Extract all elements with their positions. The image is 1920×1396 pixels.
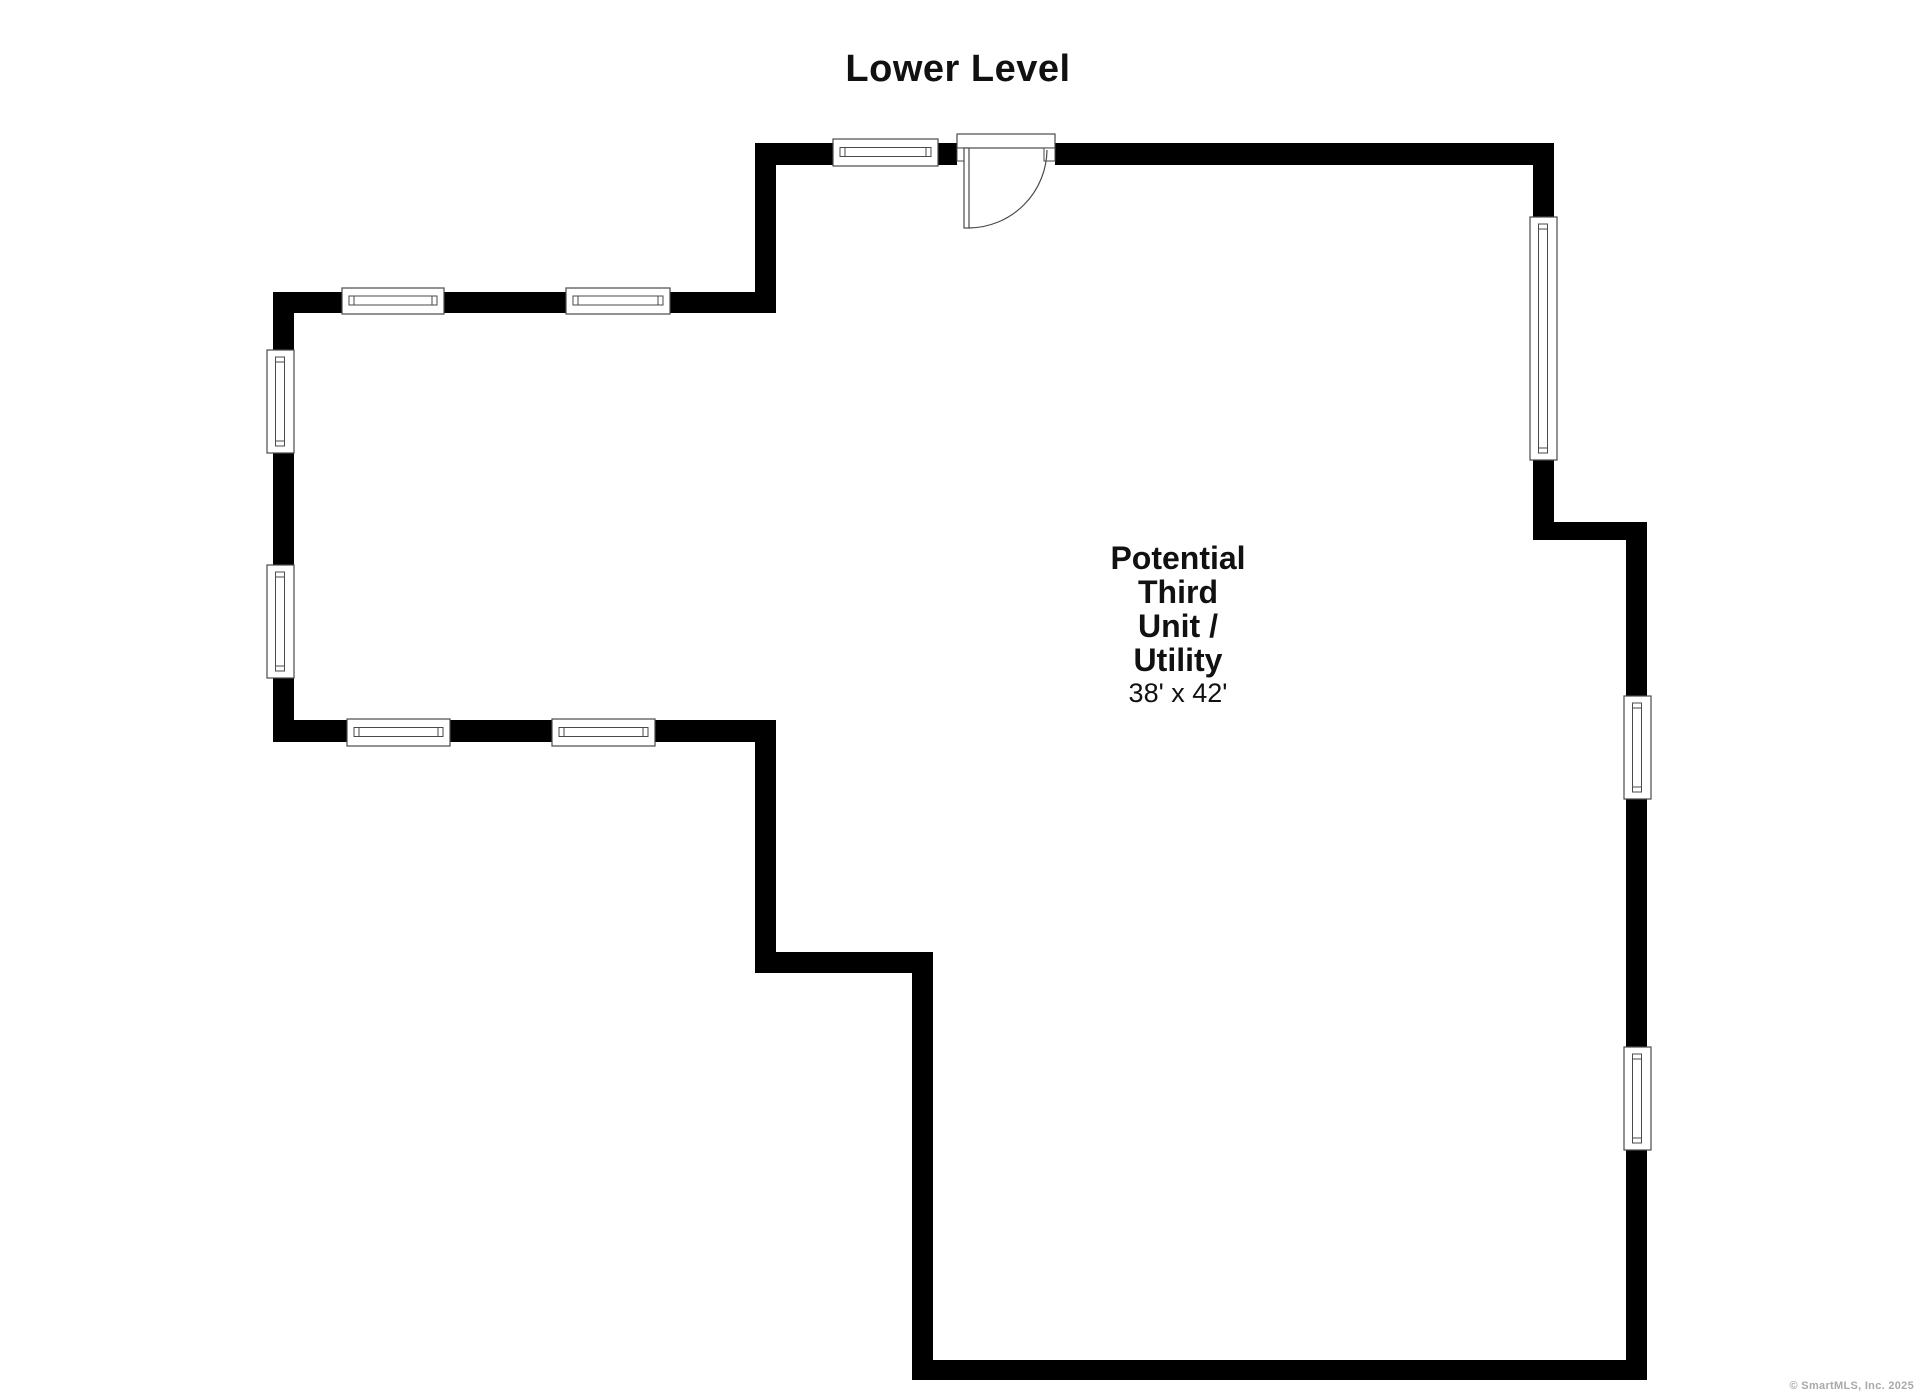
lower-left-vertical-wall	[912, 952, 933, 1380]
copyright-text: © SmartMLS, Inc. 2025	[1790, 1380, 1914, 1392]
entry-door-swing-arc	[969, 150, 1047, 228]
room-label-line: Third	[978, 575, 1378, 609]
room-label-line: Potential	[978, 541, 1378, 575]
east-wall-upper-window-glass	[1539, 224, 1548, 453]
west-wing-bottom-window-1-glass	[354, 728, 443, 737]
east-wall-lower	[1626, 522, 1647, 1380]
room-label-line: Unit /	[978, 609, 1378, 643]
west-wall-window-2-glass	[276, 572, 285, 671]
top-wall-window-glass	[840, 148, 931, 157]
floorplan-drawing	[0, 0, 1920, 1396]
east-wall-lower-window-1-glass	[1633, 703, 1642, 792]
south-wall	[912, 1360, 1647, 1380]
room-label: Potential Third Unit / Utility 38' x 42'	[978, 541, 1378, 708]
entry-door-header	[957, 134, 1055, 148]
page-title: Lower Level	[0, 48, 1916, 91]
west-wing-top-window-1-glass	[349, 296, 437, 305]
entry-door-jamb-right	[1044, 148, 1055, 161]
mid-left-vertical-wall	[755, 720, 776, 973]
room-dimensions: 38' x 42'	[978, 678, 1378, 708]
west-wing-bottom-window-2-glass	[559, 728, 648, 737]
east-wall-lower-window-2-glass	[1633, 1054, 1642, 1143]
top-wall-right-of-door	[1055, 143, 1554, 165]
west-wall-window-1-glass	[276, 357, 285, 446]
mid-step-horizontal-wall	[755, 952, 933, 973]
room-label-line: Utility	[978, 643, 1378, 677]
floorplan-page: Lower Level Potential Third Unit / Utili…	[0, 0, 1920, 1396]
west-wing-top-window-2-glass	[573, 296, 663, 305]
entry-door-leaf	[964, 148, 969, 228]
upper-left-jog-wall	[755, 143, 776, 313]
